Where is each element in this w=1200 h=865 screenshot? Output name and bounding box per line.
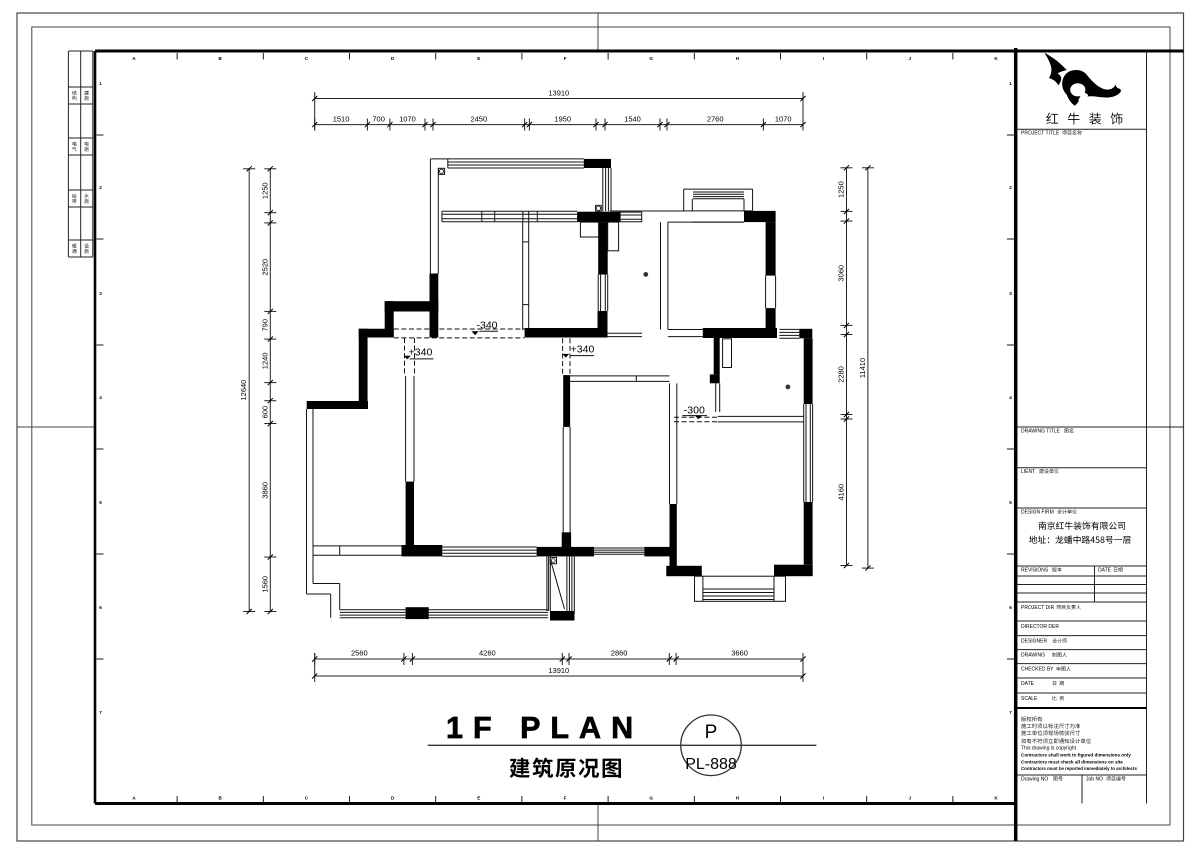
svg-text:6: 6 [1009,605,1012,610]
svg-text:1540: 1540 [624,115,641,124]
svg-text:600: 600 [260,406,269,419]
svg-text:790: 790 [260,319,269,332]
svg-text:5: 5 [99,500,102,505]
svg-text:F: F [564,796,567,801]
svg-text:4: 4 [1009,395,1012,400]
svg-text:B: B [219,796,223,801]
svg-text:CHECKED BY: CHECKED BY [1021,667,1054,673]
svg-text:12640: 12640 [239,380,248,401]
svg-text:2450: 2450 [470,115,487,124]
svg-text:A: A [132,56,136,61]
svg-text:F: F [564,56,567,61]
svg-text:J: J [909,56,912,61]
svg-text:4: 4 [99,395,102,400]
svg-text:C: C [305,796,309,801]
svg-text:Contractors shall work to figu: Contractors shall work to figured dimens… [1021,753,1131,758]
svg-text:1F PLAN: 1F PLAN [446,711,643,745]
svg-text:H: H [736,796,740,801]
svg-text:1250: 1250 [837,181,846,198]
svg-text:1070: 1070 [399,115,416,124]
svg-text:1950: 1950 [554,115,571,124]
svg-text:I: I [823,796,824,801]
svg-text:K: K [994,56,998,61]
svg-text:DATE: DATE [1098,568,1112,574]
svg-text:1240: 1240 [260,353,269,370]
svg-text:2: 2 [1009,185,1012,190]
svg-text:+340: +340 [571,344,595,356]
svg-text:3060: 3060 [837,265,846,282]
svg-text:2760: 2760 [707,115,724,124]
svg-text:1: 1 [1009,81,1012,86]
svg-text:1: 1 [99,81,102,86]
svg-text:+340: +340 [409,347,433,359]
svg-text:Contractors must check all dim: Contractors must check all dimensions on… [1021,760,1123,765]
svg-text:700: 700 [372,115,385,124]
svg-text:PROJECT TITLE: PROJECT TITLE [1021,131,1060,137]
svg-text:DESIGNER: DESIGNER [1021,639,1048,645]
svg-text:2520: 2520 [260,259,269,276]
svg-text:K: K [994,796,998,801]
svg-text:PROJECT DIR: PROJECT DIR [1021,605,1055,611]
svg-text:7: 7 [99,710,102,715]
svg-text:DRAWING: DRAWING [1021,653,1045,659]
svg-text:D: D [391,796,395,801]
svg-text:E: E [477,796,480,801]
svg-text:3: 3 [1009,291,1012,296]
svg-text:C: C [305,56,309,61]
svg-text:13910: 13910 [548,666,569,675]
svg-text:I: I [823,56,824,61]
svg-text:2560: 2560 [351,649,368,658]
svg-text:11410: 11410 [858,358,867,378]
svg-text:6: 6 [99,605,102,610]
svg-text:1250: 1250 [260,182,269,199]
svg-text:2: 2 [99,185,102,190]
svg-text:DRAWING TITLE: DRAWING TITLE [1021,429,1061,435]
svg-text:4160: 4160 [837,484,846,501]
svg-text:4260: 4260 [479,649,496,658]
svg-text:LIENT: LIENT [1021,469,1035,475]
svg-text:Contractors must be reported i: Contractors must be reported immediately… [1021,766,1137,771]
svg-text:Drawing NO: Drawing NO [1021,777,1048,783]
svg-text:Job NO: Job NO [1086,777,1103,783]
svg-text:-340: -340 [476,320,497,332]
svg-text:3660: 3660 [731,649,748,658]
svg-text:H: H [736,56,740,61]
svg-text:E: E [477,56,480,61]
svg-text:7: 7 [1009,710,1012,715]
svg-text:DATE: DATE [1021,681,1035,687]
svg-text:DIRECTOR DER: DIRECTOR DER [1021,624,1059,630]
svg-text:B: B [219,56,223,61]
svg-text:13910: 13910 [548,89,569,98]
svg-text:5: 5 [1009,500,1012,505]
svg-text:1560: 1560 [260,576,269,593]
svg-text:This drawing is copyright: This drawing is copyright [1021,746,1077,752]
svg-text:DESIGN FIRM: DESIGN FIRM [1021,510,1054,516]
svg-text:D: D [391,56,395,61]
svg-text:J: J [909,796,912,801]
svg-text:1510: 1510 [333,115,350,124]
svg-text:REVISIONS: REVISIONS [1021,568,1049,574]
svg-text:A: A [132,796,136,801]
svg-text:PL-888: PL-888 [685,756,737,773]
svg-text:2860: 2860 [611,649,628,658]
svg-text:3860: 3860 [260,482,269,499]
svg-text:G: G [649,56,653,61]
svg-text:2280: 2280 [837,366,846,383]
svg-text:SCALE: SCALE [1021,696,1038,702]
svg-text:1070: 1070 [775,115,792,124]
svg-text:3: 3 [99,291,102,296]
svg-text:P: P [705,722,718,743]
svg-text:-300: -300 [684,405,705,417]
svg-text:G: G [649,796,653,801]
